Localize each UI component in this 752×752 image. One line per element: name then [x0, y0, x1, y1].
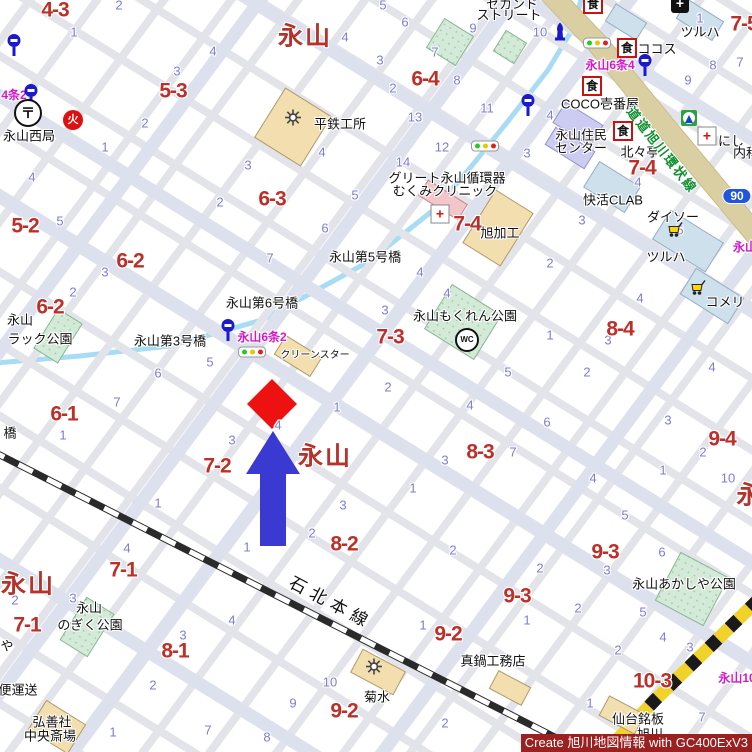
lot-number: 8	[709, 59, 716, 72]
lot-number: 10	[533, 26, 547, 39]
lot-number: 4	[123, 542, 130, 555]
lot-number: 6	[543, 416, 550, 429]
block-label: 9-3	[503, 586, 530, 607]
lot-number: 7	[431, 46, 438, 59]
address-label: 永山6条2	[237, 331, 286, 343]
block-label: 6-2	[36, 297, 63, 318]
lot-number: 5	[639, 606, 646, 619]
lot-number: 4	[28, 171, 35, 184]
lot-number: 9	[684, 74, 691, 87]
lot-number: 2	[389, 82, 396, 95]
bus-stop-icon	[8, 34, 21, 56]
lot-number: 2	[546, 257, 553, 270]
lot-number: 5	[56, 215, 63, 228]
lot-number: 3	[381, 304, 388, 317]
lot-number: 2	[308, 527, 315, 540]
hospital-icon: +	[671, 0, 689, 13]
bus-stop-icon	[522, 94, 535, 116]
block-label: 7-4	[628, 158, 655, 179]
lot-number: 1	[546, 329, 553, 342]
lot-number: 1	[659, 464, 666, 477]
map-canvas[interactable]: 2143214253569437821113124145610187943435…	[0, 0, 752, 752]
shopping-cart-icon	[666, 222, 684, 243]
lot-number: 1	[696, 12, 703, 25]
block-label: 9-2	[434, 624, 461, 645]
lot-number: 3	[228, 434, 235, 447]
lot-number: 4	[228, 614, 235, 627]
lot-number: 14	[396, 156, 410, 169]
poi-label: 永山第3号橋	[134, 335, 206, 348]
address-label: 永山	[733, 241, 752, 253]
restaurant-icon: 食	[583, 0, 603, 14]
lot-number: 4	[341, 31, 348, 44]
lot-number: 4	[318, 146, 325, 159]
block-label: 8-3	[466, 442, 493, 463]
lot-number: 2	[141, 117, 148, 130]
poi-label: COCO壱番屋	[561, 98, 639, 111]
traffic-light-icon	[238, 347, 266, 358]
block-label: 6-4	[411, 69, 438, 90]
block-label: 9-3	[591, 542, 618, 563]
lot-number: 1	[101, 141, 108, 154]
traffic-light-icon	[471, 141, 499, 152]
lot-number: 2	[115, 0, 122, 12]
fire-station-icon: 火	[63, 110, 83, 130]
lot-number: 8	[453, 74, 460, 87]
shopping-cart-icon	[689, 280, 707, 301]
lot-number: 2	[536, 562, 543, 575]
lot-number: 3	[376, 54, 383, 67]
poi-label: 中央斎場	[24, 730, 76, 743]
lot-number: 10	[721, 472, 735, 485]
lot-number: 2	[574, 602, 581, 615]
lot-number: 1	[586, 697, 593, 710]
lot-number: 2	[216, 196, 223, 209]
lot-number: 4	[209, 45, 216, 58]
lot-number: 4	[546, 109, 553, 122]
block-label: 9-2	[330, 701, 357, 722]
poi-label: 旭加工	[480, 227, 519, 240]
address-label: 永山6条4	[585, 59, 634, 71]
route-90-badge: 90	[722, 188, 751, 204]
lot-number: 6	[321, 222, 328, 235]
clinic-icon: +	[431, 205, 450, 224]
poi-label: 弘善社	[32, 716, 71, 729]
clinic-icon: +	[698, 127, 717, 146]
lot-number: 2	[614, 644, 621, 657]
poi-label: むくみクリニック	[393, 185, 498, 198]
lot-number: 2	[449, 544, 456, 557]
lot-number: 10	[323, 676, 337, 689]
monument-icon	[553, 22, 567, 47]
block-label: 8-1	[161, 641, 188, 662]
lot-number: 7	[204, 724, 211, 737]
lot-number: 1	[333, 401, 340, 414]
town-name-label: 永山	[1, 573, 55, 598]
block-label: 9-4	[708, 429, 735, 450]
lot-number: 7	[736, 56, 743, 69]
lot-number: 4	[416, 266, 423, 279]
poi-label: 永山あかしや公園	[632, 578, 736, 591]
poi-label: ストリート	[476, 9, 541, 22]
traffic-light-icon	[583, 38, 611, 49]
poi-label: 永山第5号橋	[329, 251, 401, 264]
town-name-label: 永山	[298, 445, 352, 470]
lot-number: 7	[266, 252, 273, 265]
poi-label: 快活CLAB	[583, 194, 643, 207]
poi-label: ツルハ	[646, 251, 685, 264]
lot-number: 1	[59, 429, 66, 442]
lot-number: 4	[659, 631, 666, 644]
poi-label: 平鉄工所	[314, 118, 366, 131]
lot-number: 5	[206, 356, 213, 369]
post-office-icon: 〒	[14, 99, 42, 127]
lot-number: 3	[578, 214, 585, 227]
landmark-green-icon	[681, 110, 697, 126]
lot-number: 5	[351, 189, 358, 202]
factory-icon	[365, 658, 383, 681]
lot-number: 1	[243, 541, 250, 554]
block-label: 6-2	[116, 251, 143, 272]
poi-label: クリーンスター	[280, 351, 349, 361]
lot-number: 1	[109, 726, 116, 739]
lot-number: 1	[409, 482, 416, 495]
bus-stop-icon	[222, 319, 235, 341]
restaurant-icon: 食	[617, 38, 637, 58]
lot-number: 4	[274, 419, 281, 432]
lot-number: 3	[603, 564, 610, 577]
poi-label: 仙台銘板	[612, 713, 664, 726]
lot-number: 7	[113, 396, 120, 409]
lot-number: 3	[441, 454, 448, 467]
lot-number: 4	[589, 472, 596, 485]
lot-number: 6	[401, 16, 408, 29]
lot-number: 12	[435, 141, 449, 154]
poi-label: 永山西局	[3, 130, 55, 143]
block-label: 7-1	[13, 615, 40, 636]
block-label: 7-2	[203, 456, 230, 477]
block-label: 4-3	[41, 0, 68, 21]
lot-number: 1	[419, 619, 426, 632]
block-label: 5-2	[11, 216, 38, 237]
lot-number: 3	[244, 159, 251, 172]
lot-number: 6	[154, 367, 161, 380]
block-label: 7-3	[376, 327, 403, 348]
lot-number: 2	[583, 366, 590, 379]
poi-label: センター	[555, 142, 607, 155]
lot-number: 3	[664, 414, 671, 427]
lot-number: 3	[523, 147, 530, 160]
poi-label: 真鍋工務店	[460, 655, 525, 668]
poi-label: 永山第6号橋	[226, 297, 298, 310]
town-name-label: 永	[736, 484, 752, 509]
lot-number: 4	[466, 399, 473, 412]
lot-number: 2	[441, 717, 448, 730]
lot-number: 1	[70, 26, 77, 39]
block-label: 7-4	[453, 214, 480, 235]
lot-number: 2	[69, 286, 76, 299]
lot-number: 5	[621, 509, 628, 522]
poi-label: ラック公園	[7, 333, 72, 346]
lot-number: 5	[504, 366, 511, 379]
poi-label: 便運送	[0, 684, 38, 697]
lot-number: 2	[384, 381, 391, 394]
lot-number: 9	[469, 22, 476, 35]
block-label: 7-1	[109, 560, 136, 581]
lot-number: 8	[263, 731, 270, 744]
poi-label: 橋	[3, 427, 16, 440]
town-name-label: 永山	[278, 25, 332, 50]
lot-number: 11	[480, 102, 494, 115]
lot-number: 4	[708, 361, 715, 374]
block-label: 10-3	[633, 671, 671, 692]
watermark: Create 旭川地図情報 with GC400ExV3	[521, 734, 752, 752]
lot-number: 3	[101, 266, 108, 279]
lot-number: 1	[523, 614, 530, 627]
lot-number: 13	[408, 111, 422, 124]
poi-label: や	[0, 640, 13, 653]
block-label: 5-3	[159, 81, 186, 102]
block-label: 6-3	[258, 189, 285, 210]
factory-icon	[284, 109, 302, 132]
lot-number: 3	[686, 641, 693, 654]
poi-label: 永山もくれん公園	[413, 310, 517, 323]
bus-stop-icon	[639, 54, 652, 76]
lot-number: 7	[509, 446, 516, 459]
lot-number: 3	[173, 65, 180, 78]
block-label: 7-5	[730, 14, 752, 35]
poi-label: 永山	[7, 314, 33, 327]
poi-label: 永山	[76, 602, 102, 615]
restaurant-icon: 食	[613, 121, 633, 141]
lot-number: 2	[149, 679, 156, 692]
poi-label: ツルハ	[680, 26, 719, 39]
block-label: 8-4	[606, 319, 633, 340]
poi-label: コメリ	[705, 296, 744, 309]
lot-number: 5	[379, 0, 386, 12]
toilet-icon: WC	[455, 328, 479, 352]
lot-number: 6	[658, 546, 665, 559]
lot-number: 9	[289, 697, 296, 710]
lot-number: 7	[698, 711, 705, 724]
block-label: 8-2	[330, 534, 357, 555]
block-label: 6-1	[50, 404, 77, 425]
restaurant-icon: 食	[582, 76, 602, 96]
lot-number: 3	[339, 499, 346, 512]
lot-number: 2	[699, 446, 706, 459]
lot-number: 4	[443, 287, 450, 300]
poi-label: 内科	[733, 147, 752, 160]
address-label: 永山10	[718, 672, 752, 684]
lot-number: 4	[636, 292, 643, 305]
lot-number: 1	[154, 497, 161, 510]
poi-label: のぎく公園	[57, 619, 122, 632]
poi-label: 菊水	[364, 691, 390, 704]
